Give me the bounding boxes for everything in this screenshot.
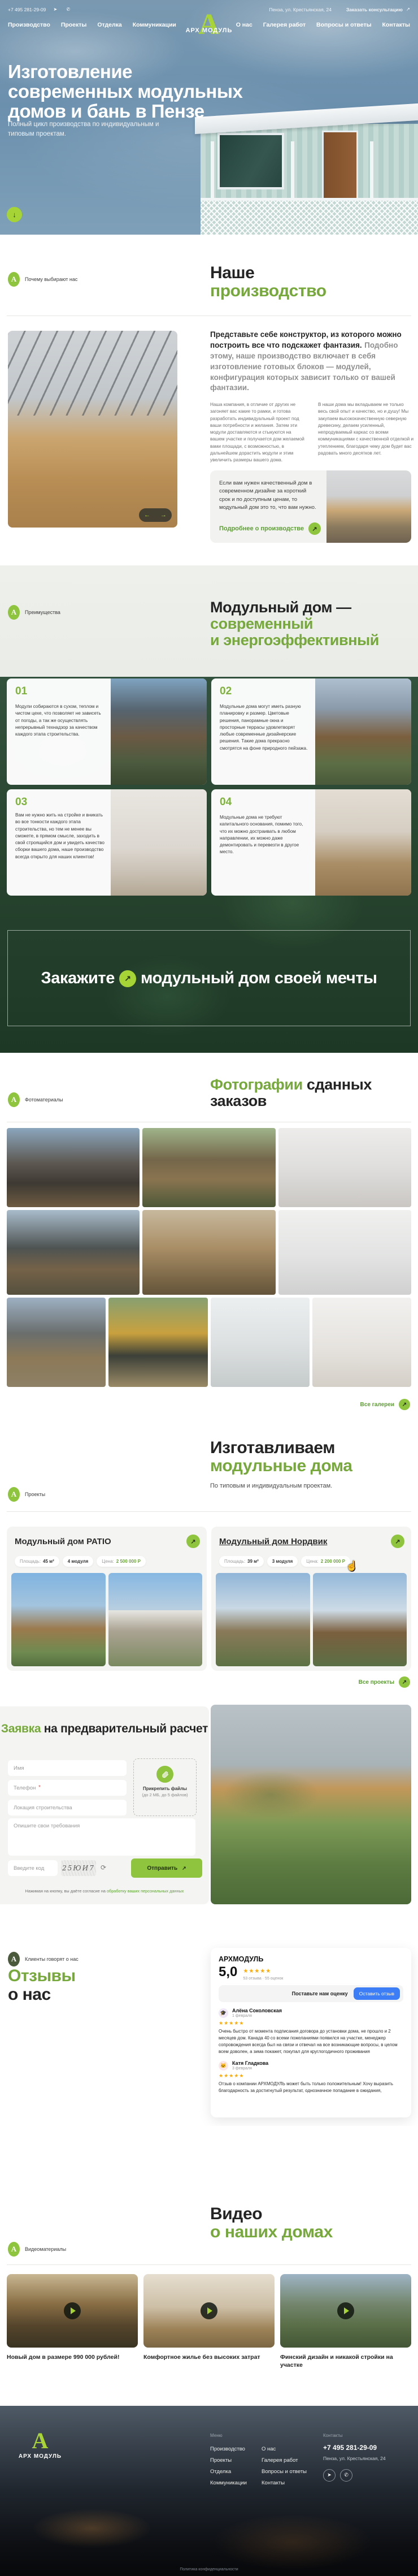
advantage-number: 03 (15, 796, 27, 809)
footer-logo[interactable]: А АРХ МОДУЛЬ (9, 2430, 71, 2460)
submit-button[interactable]: Отправить ↗ (131, 1858, 202, 1878)
paperclip-icon (156, 1766, 173, 1783)
project-renders (216, 1573, 407, 1666)
production-card-photo (326, 470, 411, 543)
reviews-section: А Клиенты говорят о нас Отзывы о нас АРХ… (0, 1928, 418, 2126)
footer-menu-title: Меню (210, 2433, 307, 2438)
cta-banner[interactable]: Закажите↗модульный дом своей мечты (7, 930, 411, 1026)
nav-item-gallery[interactable]: Галерея работ (263, 21, 306, 28)
nav-item-projects[interactable]: Проекты (61, 21, 87, 28)
review-author: Катя Гладкова (232, 2060, 268, 2066)
phone-field[interactable] (8, 1780, 127, 1796)
rating-stars: ★★★★★ (243, 1968, 271, 1974)
gallery-grid (7, 1128, 411, 1390)
production-more-label: Подробнее о производстве (219, 525, 304, 532)
attach-title: Прикрепить файлы (134, 1786, 196, 1791)
footer-link-projects[interactable]: Проекты (210, 2455, 247, 2466)
logo-mark-icon: А (8, 605, 20, 620)
project-render-photo (216, 1573, 310, 1666)
heading-part-green2: и энергоэффективный (210, 632, 379, 649)
hero-section: +7 495 281-29-09 ➤ ✆ Пенза, ул. Крестьян… (0, 0, 418, 235)
production-photo-carousel[interactable]: ← → (8, 331, 177, 528)
heading-part-green: производство (210, 282, 326, 300)
telegram-icon[interactable]: ➤ (51, 6, 59, 13)
section-badge: А Клиенты говорят о нас (8, 1952, 79, 1966)
badge-label: Проекты (25, 1492, 45, 1497)
cta-part2: модульный дом своей мечты (141, 969, 377, 987)
footer-link-communications[interactable]: Коммуникации (210, 2478, 247, 2489)
price-value: 2 200 000 Р (321, 1559, 345, 1564)
required-mark: * (38, 1784, 41, 1791)
gallery-photo[interactable] (142, 1210, 275, 1295)
gallery-photo[interactable] (312, 1298, 411, 1387)
advantage-text: Модульные дома не требуют капитального о… (220, 814, 310, 856)
footer-link-about[interactable]: О нас (262, 2444, 307, 2455)
submit-label: Отправить (147, 1865, 177, 1872)
section-badge: А Фотоматериалы (8, 1092, 63, 1107)
carousel-nav: ← → (139, 508, 172, 522)
section-badge: А Проекты (8, 1487, 45, 1502)
all-projects-label: Все проекты (359, 1679, 394, 1685)
badge-label: Фотоматериалы (25, 1097, 63, 1103)
consult-link[interactable]: Заказать консультацию (346, 7, 403, 12)
advantage-number: 02 (220, 685, 232, 698)
footer-link-faq[interactable]: Вопросы и ответы (262, 2466, 307, 2478)
production-lead: Представьте себе конструктор, из которог… (210, 330, 411, 394)
heading-part-green1: современный (210, 615, 313, 632)
captcha-image: 25ЮИ7 (61, 1860, 96, 1876)
reviews-heading: Отзывы о нас (8, 1966, 76, 2004)
gallery-photo[interactable] (7, 1298, 106, 1387)
review-item: 🎓 Алёна Соколовская 1 февраля ★★★★★ Очен… (219, 2008, 403, 2055)
area-label: Площадь: (20, 1559, 41, 1564)
video-title: Комфортное жилье без высоких затрат (143, 2353, 264, 2361)
heading-part-green: модульные дома (210, 1456, 352, 1475)
advantage-photo (315, 678, 411, 785)
project-specs: Площадь:39 м² 3 модуля Цена:2 200 000 Р (219, 1556, 350, 1567)
logo-mark-icon: А (8, 1487, 20, 1502)
area-value: 45 м² (43, 1559, 54, 1564)
price-label: Цена: (102, 1559, 114, 1564)
all-galleries-label: Все галереи (360, 1402, 394, 1408)
footer: А АРХ МОДУЛЬ Меню Производство Проекты О… (0, 2406, 418, 2576)
landing-page: +7 495 281-29-09 ➤ ✆ Пенза, ул. Крестьян… (0, 0, 418, 2576)
video-thumbnail[interactable] (143, 2274, 275, 2348)
section-badge: А Видеоматериалы (8, 2242, 66, 2257)
all-galleries-link[interactable]: Все галереи ↗ (360, 1399, 410, 1410)
request-form-section: Заявка на предварительный расчет * Прикр… (0, 1688, 418, 1928)
advantage-number: 04 (220, 796, 232, 809)
hero-subtitle: Полный цикл производства по индивидуальн… (8, 120, 177, 139)
arrow-up-right-icon[interactable]: ↗ (186, 1535, 200, 1548)
video-title: Финский дизайн и никакой стройки на учас… (280, 2353, 400, 2369)
nav-item-finishing[interactable]: Отделка (97, 21, 121, 28)
review-item: 🐱 Катя Гладкова 3 февраля ★★★★★ Отзыв о … (219, 2060, 403, 2094)
cta-part1: Закажите (41, 969, 114, 987)
arrow-up-right-icon: ↗ (399, 1399, 410, 1410)
projects-subtitle: По типовым и индивидуальным проектам. (210, 1483, 411, 1489)
area-label: Площадь: (224, 1559, 245, 1564)
captcha-field[interactable] (8, 1860, 58, 1876)
production-columns: Наша компания, в отличие от других не за… (210, 401, 413, 464)
review-stars: ★★★★★ (219, 2020, 403, 2026)
footer-contacts-title: Контакты (323, 2433, 386, 2438)
videos-section: А Видеоматериалы Видео о наших домах Нов… (0, 2126, 418, 2406)
attach-files-box[interactable]: Прикрепить файлы (до 2 МБ, до 5 файлов) (133, 1758, 197, 1816)
gallery-photo[interactable] (211, 1298, 310, 1387)
rate-us-bar: Поставьте нам оценку Оставить отзыв (219, 1985, 403, 2002)
heading-part-dark: Изготавливаем (210, 1438, 335, 1457)
nav-item-contacts[interactable]: Контакты (382, 21, 410, 28)
whatsapp-icon[interactable]: ✆ (64, 6, 72, 13)
telegram-icon[interactable]: ➤ (323, 2469, 336, 2482)
production-card-text: Если вам нужен качественный дом в соврем… (219, 479, 319, 512)
brand-name: АРХ МОДУЛЬ (175, 27, 243, 34)
section-badge: А Почему выбирают нас (8, 272, 77, 287)
mouse-cursor: ☝ (346, 1561, 358, 1572)
arrow-up-right-icon: ↗ (119, 970, 136, 987)
footer-phone[interactable]: +7 495 281-29-09 (323, 2444, 386, 2452)
whatsapp-icon[interactable]: ✆ (340, 2469, 352, 2482)
advantage-card-1: 01 Модули собираются в сухом, теплом и ч… (7, 678, 207, 785)
badge-label: Преимущества (25, 610, 60, 615)
price-label: Цена: (306, 1559, 318, 1564)
video-cards: Новый дом в размере 990 000 рублей! Комф… (7, 2274, 411, 2369)
gallery-photo[interactable] (108, 1298, 207, 1387)
brand-name: АРХ МОДУЛЬ (9, 2453, 71, 2460)
leave-review-button[interactable]: Оставить отзыв (354, 1987, 400, 2000)
nav-item-production[interactable]: Производство (8, 21, 50, 28)
consent-text: Нажимая на кнопку, вы даёте согласие на (25, 1888, 106, 1894)
advantage-card-2: 02 Модульные дома могут иметь разную пла… (211, 678, 411, 785)
nav-item-faq[interactable]: Вопросы и ответы (316, 21, 372, 28)
price-value: 2 500 000 Р (116, 1559, 141, 1564)
area-value: 39 м² (247, 1559, 259, 1564)
production-col1: Наша компания, в отличие от других не за… (210, 401, 306, 464)
arrow-up-right-icon: ↗ (182, 1865, 186, 1872)
captcha-refresh-button[interactable]: ⟳ (101, 1864, 106, 1872)
play-icon[interactable] (337, 2302, 354, 2319)
arrow-down-icon: ↓ (12, 210, 16, 219)
form-side-photo (211, 1705, 411, 1904)
advantage-number: 01 (15, 685, 27, 698)
advantages-heading: Модульный дом — современный и энергоэффе… (210, 599, 411, 649)
heading-part-green: Заявка (1, 1722, 41, 1735)
arrow-up-right-icon: ↗ (308, 522, 321, 535)
advantage-photo (315, 789, 411, 896)
badge-label: Почему выбирают нас (25, 276, 77, 282)
project-cards: Модульный дом PATIO ↗ Площадь:45 м² 4 мо… (7, 1527, 411, 1671)
section-badge: А Преимущества (8, 605, 60, 620)
rate-prompt: Поставьте нам оценку (292, 1991, 348, 1996)
advantage-photo (111, 678, 207, 785)
avatar: 🎓 (219, 2008, 228, 2018)
footer-contacts: Контакты +7 495 281-29-09 Пенза, ул. Кре… (323, 2433, 386, 2482)
production-col2: В наши дома мы вкладываем не только весь… (318, 401, 413, 464)
project-render-photo (11, 1573, 106, 1666)
logo-letter-icon: А (198, 10, 220, 40)
heading-part-dark: Наше (210, 263, 254, 282)
gallery-photo[interactable] (142, 1128, 275, 1207)
nav-item-communications[interactable]: Коммуникации (133, 21, 176, 28)
logo-letter-icon: А (9, 2430, 71, 2452)
project-specs: Площадь:45 м² 4 модуля Цена:2 500 000 Р (15, 1556, 146, 1567)
video-card[interactable]: Комфортное жилье без высоких затрат (143, 2274, 275, 2369)
heading-part-dark: на предварительный расчет (44, 1722, 208, 1735)
arrow-up-right-icon[interactable]: ↗ (391, 1535, 404, 1548)
consent-link[interactable]: обработку ваших персональных данных (107, 1888, 184, 1894)
gallery-photo[interactable] (7, 1210, 140, 1295)
footer-link-gallery[interactable]: Галерея работ (262, 2455, 307, 2466)
production-more-link[interactable]: Подробнее о производстве ↗ (219, 522, 321, 535)
production-heading: Наше производство (210, 264, 411, 301)
scroll-down-button[interactable]: ↓ (7, 207, 22, 222)
video-title: Новый дом в размере 990 000 рублей! (7, 2353, 127, 2361)
heading-part-green: Отзывы (8, 1966, 76, 1985)
heading-part-dark: Видео (210, 2205, 262, 2223)
video-card[interactable]: Новый дом в размере 990 000 рублей! (7, 2274, 138, 2369)
divider (7, 2264, 411, 2265)
forest-band-section: 01 Модули собираются в сухом, теплом и ч… (0, 677, 418, 1053)
hero-title: Изготовление современных модульных домов… (8, 62, 251, 122)
rating-value: 5,0 (219, 1965, 237, 1979)
project-card-nordvik[interactable]: Модульный дом Нордвик ↗ Площадь:39 м² 3 … (211, 1527, 411, 1671)
advantage-text: Вам не нужно жить на стройке и вникать в… (15, 812, 106, 861)
logo-mark-icon: А (8, 1952, 20, 1966)
consent-note: Нажимая на кнопку, вы даёте согласие на … (6, 1888, 203, 1894)
video-thumbnail[interactable] (280, 2274, 411, 2348)
heading-part-green: о наших домах (210, 2223, 333, 2241)
gallery-photo[interactable] (278, 1128, 411, 1207)
hero-house-photo (201, 110, 418, 235)
gallery-photo[interactable] (7, 1128, 140, 1207)
production-section: А Почему выбирают нас Наше производство … (0, 235, 418, 565)
carousel-next-button[interactable]: → (160, 512, 167, 518)
org-name: АРХМОДУЛЬ (219, 1955, 403, 1963)
video-card[interactable]: Финский дизайн и никакой стройки на учас… (280, 2274, 411, 2369)
video-thumbnail[interactable] (7, 2274, 138, 2348)
footer-address: Пенза, ул. Крестьянская, 24 (323, 2455, 386, 2462)
project-render-photo (313, 1573, 407, 1666)
advantage-text: Модули собираются в сухом, теплом и чист… (15, 703, 106, 738)
form-heading: Заявка на предварительный расчет (0, 1722, 209, 1736)
divider (7, 1122, 411, 1122)
advantage-card-3: 03 Вам не нужно жить на стройке и вникат… (7, 789, 207, 896)
footer-link-contacts[interactable]: Контакты (262, 2478, 307, 2489)
badge-label: Клиенты говорят о нас (25, 1956, 79, 1962)
project-renders (11, 1573, 202, 1666)
rating-count: 53 отзыва · 55 оценок (243, 1977, 283, 1981)
review-date: 1 февраля (232, 2014, 282, 2018)
request-form-panel: Заявка на предварительный расчет * Прикр… (0, 1706, 209, 1904)
review-stars: ★★★★★ (219, 2073, 403, 2079)
review-author: Алёна Соколовская (232, 2008, 282, 2013)
org-rating: 5,0 ★★★★★ 53 отзыва · 55 оценок (219, 1965, 403, 1981)
avatar: 🐱 (219, 2061, 228, 2071)
review-text: Очень быстро от момента подписания догов… (219, 2028, 403, 2055)
heading-part-dark: о нас (8, 1985, 51, 2004)
header-address: Пенза, ул. Крестьянская, 24 (269, 7, 332, 12)
projects-section: А Проекты Изготавливаем модульные дома П… (0, 1425, 418, 1688)
production-card: Если вам нужен качественный дом в соврем… (210, 470, 411, 543)
project-card-patio[interactable]: Модульный дом PATIO ↗ Площадь:45 м² 4 мо… (7, 1527, 207, 1671)
advantage-text: Модульные дома могут иметь разную планир… (220, 703, 310, 752)
header-phone[interactable]: +7 495 281-29-09 (8, 7, 46, 12)
footer-link-production[interactable]: Производство (210, 2444, 247, 2455)
arrow-up-right-icon: ↗ (406, 6, 410, 12)
yandex-reviews-widget[interactable]: АРХМОДУЛЬ 5,0 ★★★★★ 53 отзыва · 55 оцено… (211, 1948, 411, 2117)
gallery-heading: Фотографии сданных заказов (210, 1077, 411, 1109)
play-icon[interactable] (201, 2302, 217, 2319)
project-render-photo (108, 1573, 203, 1666)
all-projects-link[interactable]: Все проекты ↗ (359, 1676, 410, 1688)
advantage-photo (111, 789, 207, 896)
review-text: Отзыв о компании АРХМОДУЛЬ может быть то… (219, 2081, 403, 2094)
attach-note: (до 2 МБ, до 5 файлов) (134, 1792, 196, 1797)
gallery-photo[interactable] (278, 1210, 411, 1295)
logo-mark-icon: А (8, 2242, 20, 2257)
policy-link[interactable]: Политика конфиденциальности (0, 2568, 418, 2571)
arrow-up-right-icon: ↗ (399, 1676, 410, 1688)
requirements-field[interactable] (8, 1818, 195, 1856)
projects-heading: Изготавливаем модульные дома (210, 1439, 411, 1476)
advantage-card-4: 04 Модульные дома не требуют капитальног… (211, 789, 411, 896)
advantages-grid: 01 Модули собираются в сухом, теплом и ч… (7, 678, 411, 896)
cta-text: Закажите↗модульный дом своей мечты (41, 968, 377, 988)
play-icon[interactable] (64, 2302, 81, 2319)
videos-heading: Видео о наших домах (210, 2205, 411, 2242)
heading-part-dark: Модульный дом — (210, 599, 351, 616)
gallery-section: А Фотоматериалы Фотографии сданных заказ… (0, 1053, 418, 1425)
logo-mark-icon: А (8, 272, 20, 287)
footer-link-finishing[interactable]: Отделка (210, 2466, 247, 2478)
carousel-prev-button[interactable]: ← (144, 512, 150, 518)
location-field[interactable] (8, 1800, 127, 1816)
badge-label: Видеоматериалы (25, 2246, 66, 2252)
modules-value: 3 модуля (272, 1559, 293, 1564)
review-date: 3 февраля (232, 2067, 268, 2071)
brand-logo[interactable]: А АРХ МОДУЛЬ (175, 15, 243, 47)
project-title[interactable]: Модульный дом Нордвик (219, 1537, 327, 1546)
logo-mark-icon: А (8, 1092, 20, 1107)
project-title[interactable]: Модульный дом PATIO (15, 1537, 111, 1546)
divider (7, 315, 411, 316)
advantages-header-section: А Преимущества Модульный дом — современн… (0, 565, 418, 677)
divider (7, 1511, 411, 1512)
footer-menu: Меню Производство Проекты Отделка Коммун… (210, 2433, 307, 2489)
modules-value: 4 модуля (68, 1559, 89, 1564)
heading-part-green: Фотографии (210, 1076, 303, 1093)
name-field[interactable] (8, 1760, 127, 1776)
